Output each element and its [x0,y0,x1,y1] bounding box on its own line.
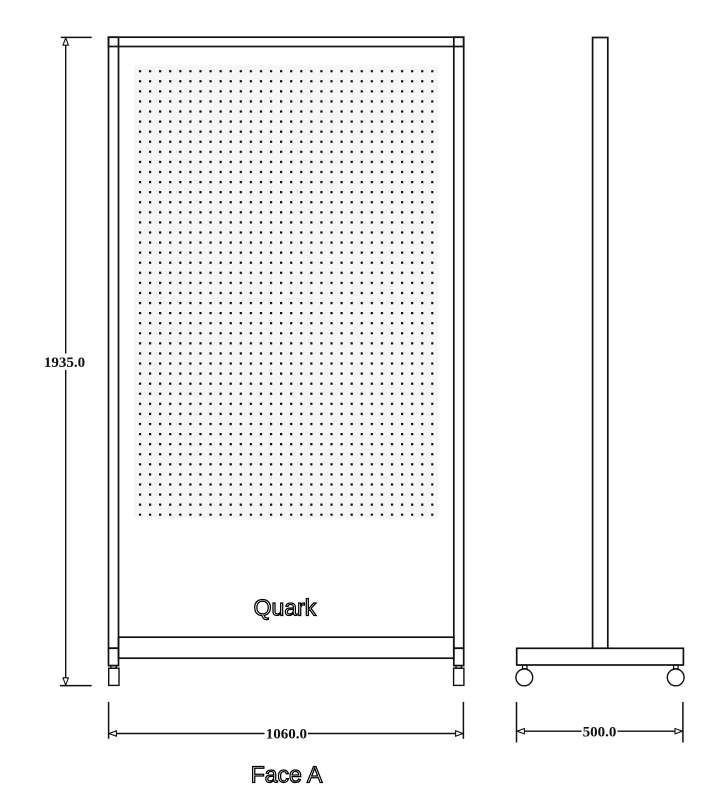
svg-text:Quark: Quark [254,595,317,621]
svg-text:1935.0: 1935.0 [44,355,85,371]
svg-text:1060.0: 1060.0 [266,727,307,743]
svg-text:500.0: 500.0 [583,725,617,741]
svg-text:Face A: Face A [251,761,323,787]
